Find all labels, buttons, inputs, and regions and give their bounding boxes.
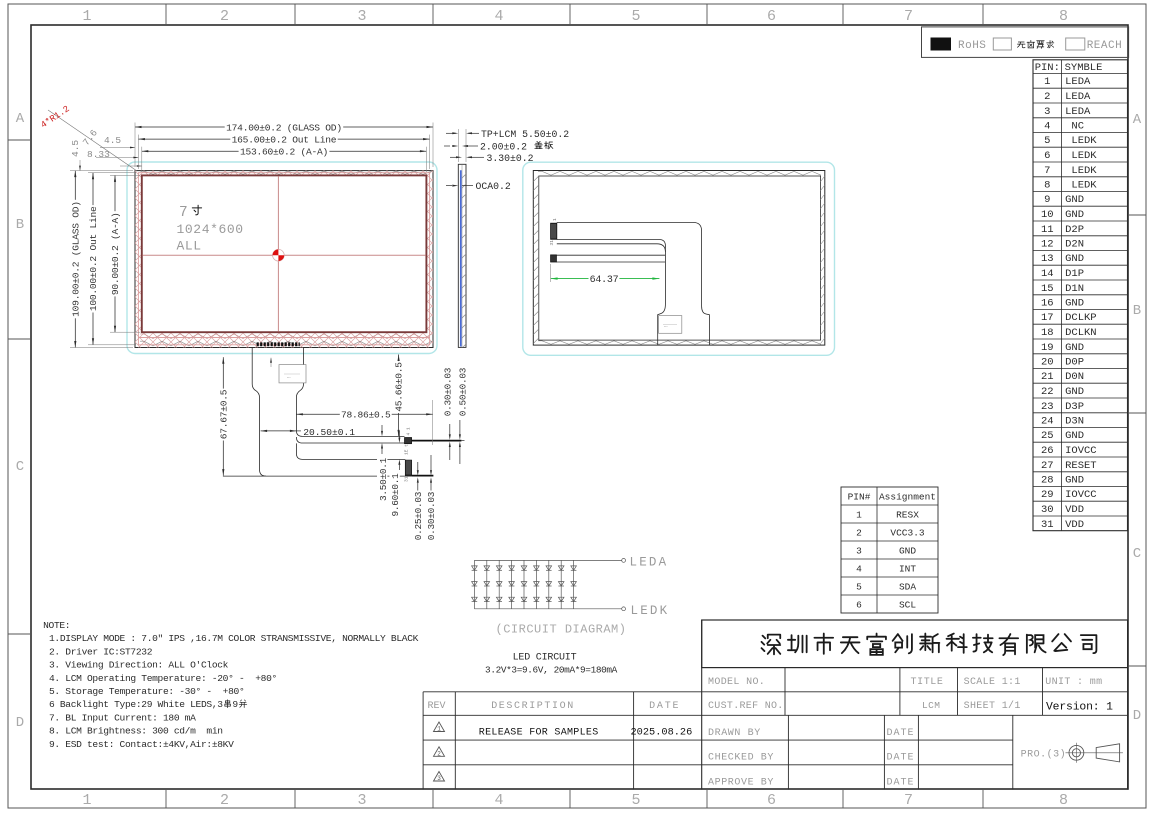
- svg-text:6 Backlight Type:29 White LEDS: 6 Backlight Type:29 White LEDS,3: [49, 699, 223, 710]
- svg-text:5: 5: [856, 582, 862, 593]
- svg-text:7: 7: [904, 8, 913, 25]
- svg-text:CUST.REF NO.: CUST.REF NO.: [708, 701, 784, 712]
- svg-text:ALL: ALL: [177, 239, 202, 254]
- svg-text:24: 24: [1041, 416, 1054, 428]
- svg-text:B: B: [1133, 303, 1141, 319]
- svg-text:DESCRIPTION: DESCRIPTION: [491, 701, 575, 712]
- svg-text:LEDK: LEDK: [631, 604, 670, 618]
- svg-text:C: C: [1133, 546, 1141, 562]
- svg-text:4: 4: [1044, 121, 1050, 133]
- svg-text:A: A: [16, 111, 25, 127]
- svg-text:GND: GND: [1065, 298, 1084, 310]
- svg-text:22: 22: [1041, 386, 1054, 398]
- svg-text:1: 1: [437, 726, 441, 733]
- svg-text:1: 1: [1044, 76, 1050, 88]
- svg-text:153.60±0.2 (A-A): 153.60±0.2 (A-A): [240, 147, 328, 158]
- svg-text:26: 26: [1041, 445, 1054, 457]
- svg-text:CHECKED BY: CHECKED BY: [708, 753, 774, 764]
- svg-text:3: 3: [357, 792, 366, 809]
- svg-text:GND: GND: [1065, 194, 1084, 206]
- svg-text:17: 17: [1041, 312, 1054, 324]
- svg-text:0.25±0.03: 0.25±0.03: [413, 491, 424, 540]
- svg-text:C: C: [16, 459, 24, 475]
- svg-text:RELEASE FOR SAMPLES: RELEASE FOR SAMPLES: [479, 728, 599, 739]
- svg-text:7: 7: [904, 792, 913, 809]
- svg-text:4: 4: [494, 792, 503, 809]
- svg-text:6: 6: [1044, 150, 1050, 162]
- svg-text:109.00±0.2 (GLASS OD): 109.00±0.2 (GLASS OD): [70, 201, 81, 317]
- svg-text:2: 2: [220, 792, 229, 809]
- svg-text:9: 9: [1044, 194, 1050, 206]
- svg-text:27: 27: [1041, 460, 1054, 472]
- svg-text:9. ESD test: Contact:±4KV,Air:: 9. ESD test: Contact:±4KV,Air:±8KV: [49, 739, 234, 750]
- svg-text:174.00±0.2 (GLASS OD): 174.00±0.2 (GLASS OD): [226, 122, 342, 133]
- svg-text:3. Viewing Direction: ALL O'Cl: 3. Viewing Direction: ALL O'Clock: [49, 660, 229, 671]
- svg-text:23: 23: [1041, 401, 1054, 413]
- svg-text:45.66±0.5: 45.66±0.5: [394, 362, 405, 412]
- svg-text:PIN:: PIN:: [1035, 62, 1060, 74]
- svg-text:DATE: DATE: [887, 778, 915, 789]
- svg-text:D2N: D2N: [1065, 239, 1084, 251]
- svg-text:0.30±0.03: 0.30±0.03: [426, 491, 437, 540]
- svg-text:PRO.(3): PRO.(3): [1021, 749, 1067, 761]
- svg-text:2025.08.26: 2025.08.26: [631, 727, 693, 739]
- svg-text:1: 1: [82, 792, 91, 809]
- svg-text:LCM: LCM: [922, 700, 940, 711]
- svg-text:8: 8: [1059, 792, 1068, 809]
- svg-text:64.37: 64.37: [590, 275, 619, 286]
- svg-text:D2P: D2P: [1065, 224, 1084, 236]
- svg-text:LEDK: LEDK: [1065, 150, 1097, 162]
- svg-text:11: 11: [1041, 224, 1054, 236]
- svg-text:7: 7: [179, 205, 188, 221]
- svg-text:4 1: 4 1: [406, 427, 412, 435]
- svg-text:DATE: DATE: [887, 753, 915, 764]
- svg-text:TP+LCM 5.50±0.2: TP+LCM 5.50±0.2: [481, 129, 569, 140]
- svg-text:GND: GND: [1065, 475, 1084, 487]
- svg-text:REV: REV: [428, 701, 446, 712]
- svg-text:D0N: D0N: [1065, 371, 1084, 383]
- svg-text:SHEET 1/1: SHEET 1/1: [964, 700, 1021, 712]
- svg-text:6: 6: [767, 792, 776, 809]
- svg-text:4. LCM Operating Temperature:: 4. LCM Operating Temperature: -20° - +80…: [49, 673, 277, 684]
- svg-text:3: 3: [437, 775, 441, 782]
- svg-text:LEDA: LEDA: [1065, 76, 1091, 88]
- svg-text:8.33: 8.33: [87, 149, 110, 160]
- svg-text:NC: NC: [1065, 121, 1084, 133]
- svg-text:7. BL Input Current: 180 mA: 7. BL Input Current: 180 mA: [49, 712, 196, 723]
- svg-text:5: 5: [631, 792, 640, 809]
- svg-text:100.00±0.2 Out Line: 100.00±0.2 Out Line: [88, 206, 99, 311]
- svg-text:5: 5: [631, 8, 640, 25]
- svg-text:APPROVE BY: APPROVE BY: [708, 778, 774, 789]
- svg-text:2.00±0.2: 2.00±0.2: [480, 142, 527, 153]
- svg-text:25: 25: [1041, 430, 1054, 442]
- svg-text:14: 14: [1041, 268, 1054, 280]
- svg-text:1024*600: 1024*600: [177, 222, 244, 237]
- svg-text:DATE: DATE: [887, 728, 915, 739]
- svg-text:3.50±0.1: 3.50±0.1: [378, 457, 389, 501]
- svg-text:29: 29: [1041, 489, 1054, 501]
- svg-text:2: 2: [220, 8, 229, 25]
- svg-text:GND: GND: [1065, 342, 1084, 354]
- svg-text:31: 31: [549, 240, 555, 246]
- svg-text:Assignment: Assignment: [879, 492, 936, 503]
- svg-text:1.DISPLAY MODE : 7.0″ IPS ,16.: 1.DISPLAY MODE : 7.0″ IPS ,16.7M COLOR S…: [49, 633, 419, 644]
- svg-text:19: 19: [1041, 342, 1054, 354]
- svg-text:VCC3.3: VCC3.3: [890, 528, 925, 539]
- svg-text:GND: GND: [899, 546, 916, 557]
- svg-text:D1P: D1P: [1065, 268, 1084, 280]
- svg-text:8: 8: [1044, 180, 1050, 192]
- svg-text:4: 4: [856, 564, 862, 575]
- svg-text:2: 2: [1044, 91, 1050, 103]
- svg-text:4: 4: [494, 8, 503, 25]
- svg-text:3: 3: [1044, 106, 1050, 118]
- svg-text:D3N: D3N: [1065, 416, 1084, 428]
- svg-text:D1N: D1N: [1065, 283, 1084, 295]
- svg-text:LEDA: LEDA: [1065, 91, 1091, 103]
- svg-text:LEDA: LEDA: [630, 556, 669, 570]
- svg-text:12: 12: [1041, 239, 1054, 251]
- svg-text:3: 3: [357, 8, 366, 25]
- svg-text:165.00±0.2 Out Line: 165.00±0.2 Out Line: [232, 134, 337, 145]
- svg-text:GND: GND: [1065, 386, 1084, 398]
- svg-text:21: 21: [1041, 371, 1054, 383]
- svg-text:REACH: REACH: [1087, 40, 1123, 52]
- svg-text:D: D: [16, 715, 24, 731]
- svg-text:VDD: VDD: [1065, 504, 1084, 516]
- svg-text:4.5: 4.5: [104, 135, 121, 146]
- svg-text:DATE: DATE: [649, 701, 680, 712]
- svg-text:0.30±0.03: 0.30±0.03: [442, 367, 453, 416]
- svg-text:B: B: [16, 217, 24, 233]
- svg-text:D0P: D0P: [1065, 357, 1084, 369]
- svg-text:5. Storage Temperature: -30° -: 5. Storage Temperature: -30° - +80°: [49, 686, 244, 697]
- svg-text:4*R1.2: 4*R1.2: [39, 104, 71, 130]
- svg-text:IOVCC: IOVCC: [1065, 489, 1097, 501]
- svg-text:1E t: 1E t: [404, 444, 410, 455]
- svg-text:IOVCC: IOVCC: [1065, 445, 1097, 457]
- svg-text:LED CIRCUIT: LED CIRCUIT: [513, 652, 577, 663]
- svg-text:31: 31: [404, 476, 410, 482]
- svg-text:GND: GND: [1065, 430, 1084, 442]
- svg-text:NOTE:: NOTE:: [43, 620, 70, 631]
- svg-text:LEDK: LEDK: [1065, 135, 1097, 147]
- svg-text:7: 7: [1044, 165, 1050, 177]
- svg-text:3.30±0.2: 3.30±0.2: [487, 153, 534, 164]
- svg-text:28: 28: [1041, 475, 1054, 487]
- svg-text:6: 6: [856, 600, 862, 611]
- svg-text:UNIT : mm: UNIT : mm: [1045, 677, 1102, 688]
- svg-text:GND: GND: [1065, 253, 1084, 265]
- svg-text:VDD: VDD: [1065, 519, 1084, 531]
- svg-text:3.2V*3=9.6V, 20mA*9=180mA: 3.2V*3=9.6V, 20mA*9=180mA: [485, 664, 618, 675]
- svg-text:(CIRCUIT DIAGRAM): (CIRCUIT DIAGRAM): [496, 623, 627, 637]
- svg-text:31: 31: [1041, 519, 1054, 531]
- svg-text:15: 15: [1041, 283, 1054, 295]
- svg-text:6: 6: [767, 8, 776, 25]
- svg-text:…: …: [664, 322, 668, 329]
- svg-text:5: 5: [1044, 135, 1050, 147]
- svg-text:13: 13: [1041, 253, 1054, 265]
- svg-text:…: …: [287, 373, 291, 380]
- svg-text:LEDK: LEDK: [1065, 165, 1097, 177]
- svg-text:LEDK: LEDK: [1065, 180, 1097, 192]
- svg-text:INT: INT: [899, 564, 916, 575]
- svg-text:SDA: SDA: [899, 582, 916, 593]
- svg-text:1: 1: [82, 8, 91, 25]
- svg-text:RESX: RESX: [896, 510, 919, 521]
- svg-text:78.86±0.5: 78.86±0.5: [341, 410, 391, 421]
- svg-text:GND: GND: [1065, 209, 1084, 221]
- svg-text:8: 8: [1059, 8, 1068, 25]
- svg-text:9: 9: [232, 699, 238, 710]
- svg-text:Version: 1: Version: 1: [1046, 702, 1113, 714]
- svg-text:DCLKP: DCLKP: [1065, 312, 1097, 324]
- svg-text:DCLKN: DCLKN: [1065, 327, 1097, 339]
- svg-text:RoHS: RoHS: [958, 40, 986, 52]
- svg-text:D: D: [1133, 708, 1141, 724]
- svg-text:1: 1: [856, 510, 862, 521]
- svg-text:30: 30: [1041, 504, 1054, 516]
- svg-text:4.5: 4.5: [70, 140, 81, 157]
- svg-text:2: 2: [437, 750, 441, 757]
- svg-text:0.50±0.03: 0.50±0.03: [458, 367, 469, 416]
- svg-text:SCL: SCL: [899, 600, 916, 611]
- svg-text:A: A: [1133, 112, 1142, 128]
- svg-text:3: 3: [856, 546, 862, 557]
- svg-text:LEDA: LEDA: [1065, 106, 1091, 118]
- svg-text:67.67±0.5: 67.67±0.5: [218, 389, 229, 439]
- svg-text:RESET: RESET: [1065, 460, 1097, 472]
- svg-text:20: 20: [1041, 357, 1054, 369]
- svg-text:PIN#: PIN#: [848, 492, 871, 503]
- svg-text:18: 18: [1041, 327, 1054, 339]
- svg-text:8. LCM Brightness: 300 cd/m m: 8. LCM Brightness: 300 cd/m min: [49, 726, 223, 737]
- svg-text:MODEL NO.: MODEL NO.: [708, 677, 765, 688]
- svg-text:7.6: 7.6: [81, 127, 100, 147]
- svg-text:20.50±0.1: 20.50±0.1: [303, 427, 355, 438]
- svg-text:DRAWN BY: DRAWN BY: [708, 728, 761, 739]
- svg-text:D3P: D3P: [1065, 401, 1084, 413]
- svg-text:SCALE 1:1: SCALE 1:1: [964, 677, 1021, 688]
- svg-text:2: 2: [856, 528, 862, 539]
- svg-text:16: 16: [1041, 298, 1054, 310]
- svg-text:9.60±0.1: 9.60±0.1: [390, 473, 401, 517]
- svg-text:90.00±0.2 (A-A): 90.00±0.2 (A-A): [110, 212, 121, 295]
- svg-text:OCA0.2: OCA0.2: [476, 181, 511, 192]
- svg-text:10: 10: [1041, 209, 1054, 221]
- svg-text:TITLE: TITLE: [911, 677, 944, 688]
- svg-text:SYMBLE: SYMBLE: [1065, 62, 1103, 74]
- svg-text:2. Driver IC:ST7232: 2. Driver IC:ST7232: [49, 646, 153, 657]
- svg-text:1: 1: [552, 218, 558, 221]
